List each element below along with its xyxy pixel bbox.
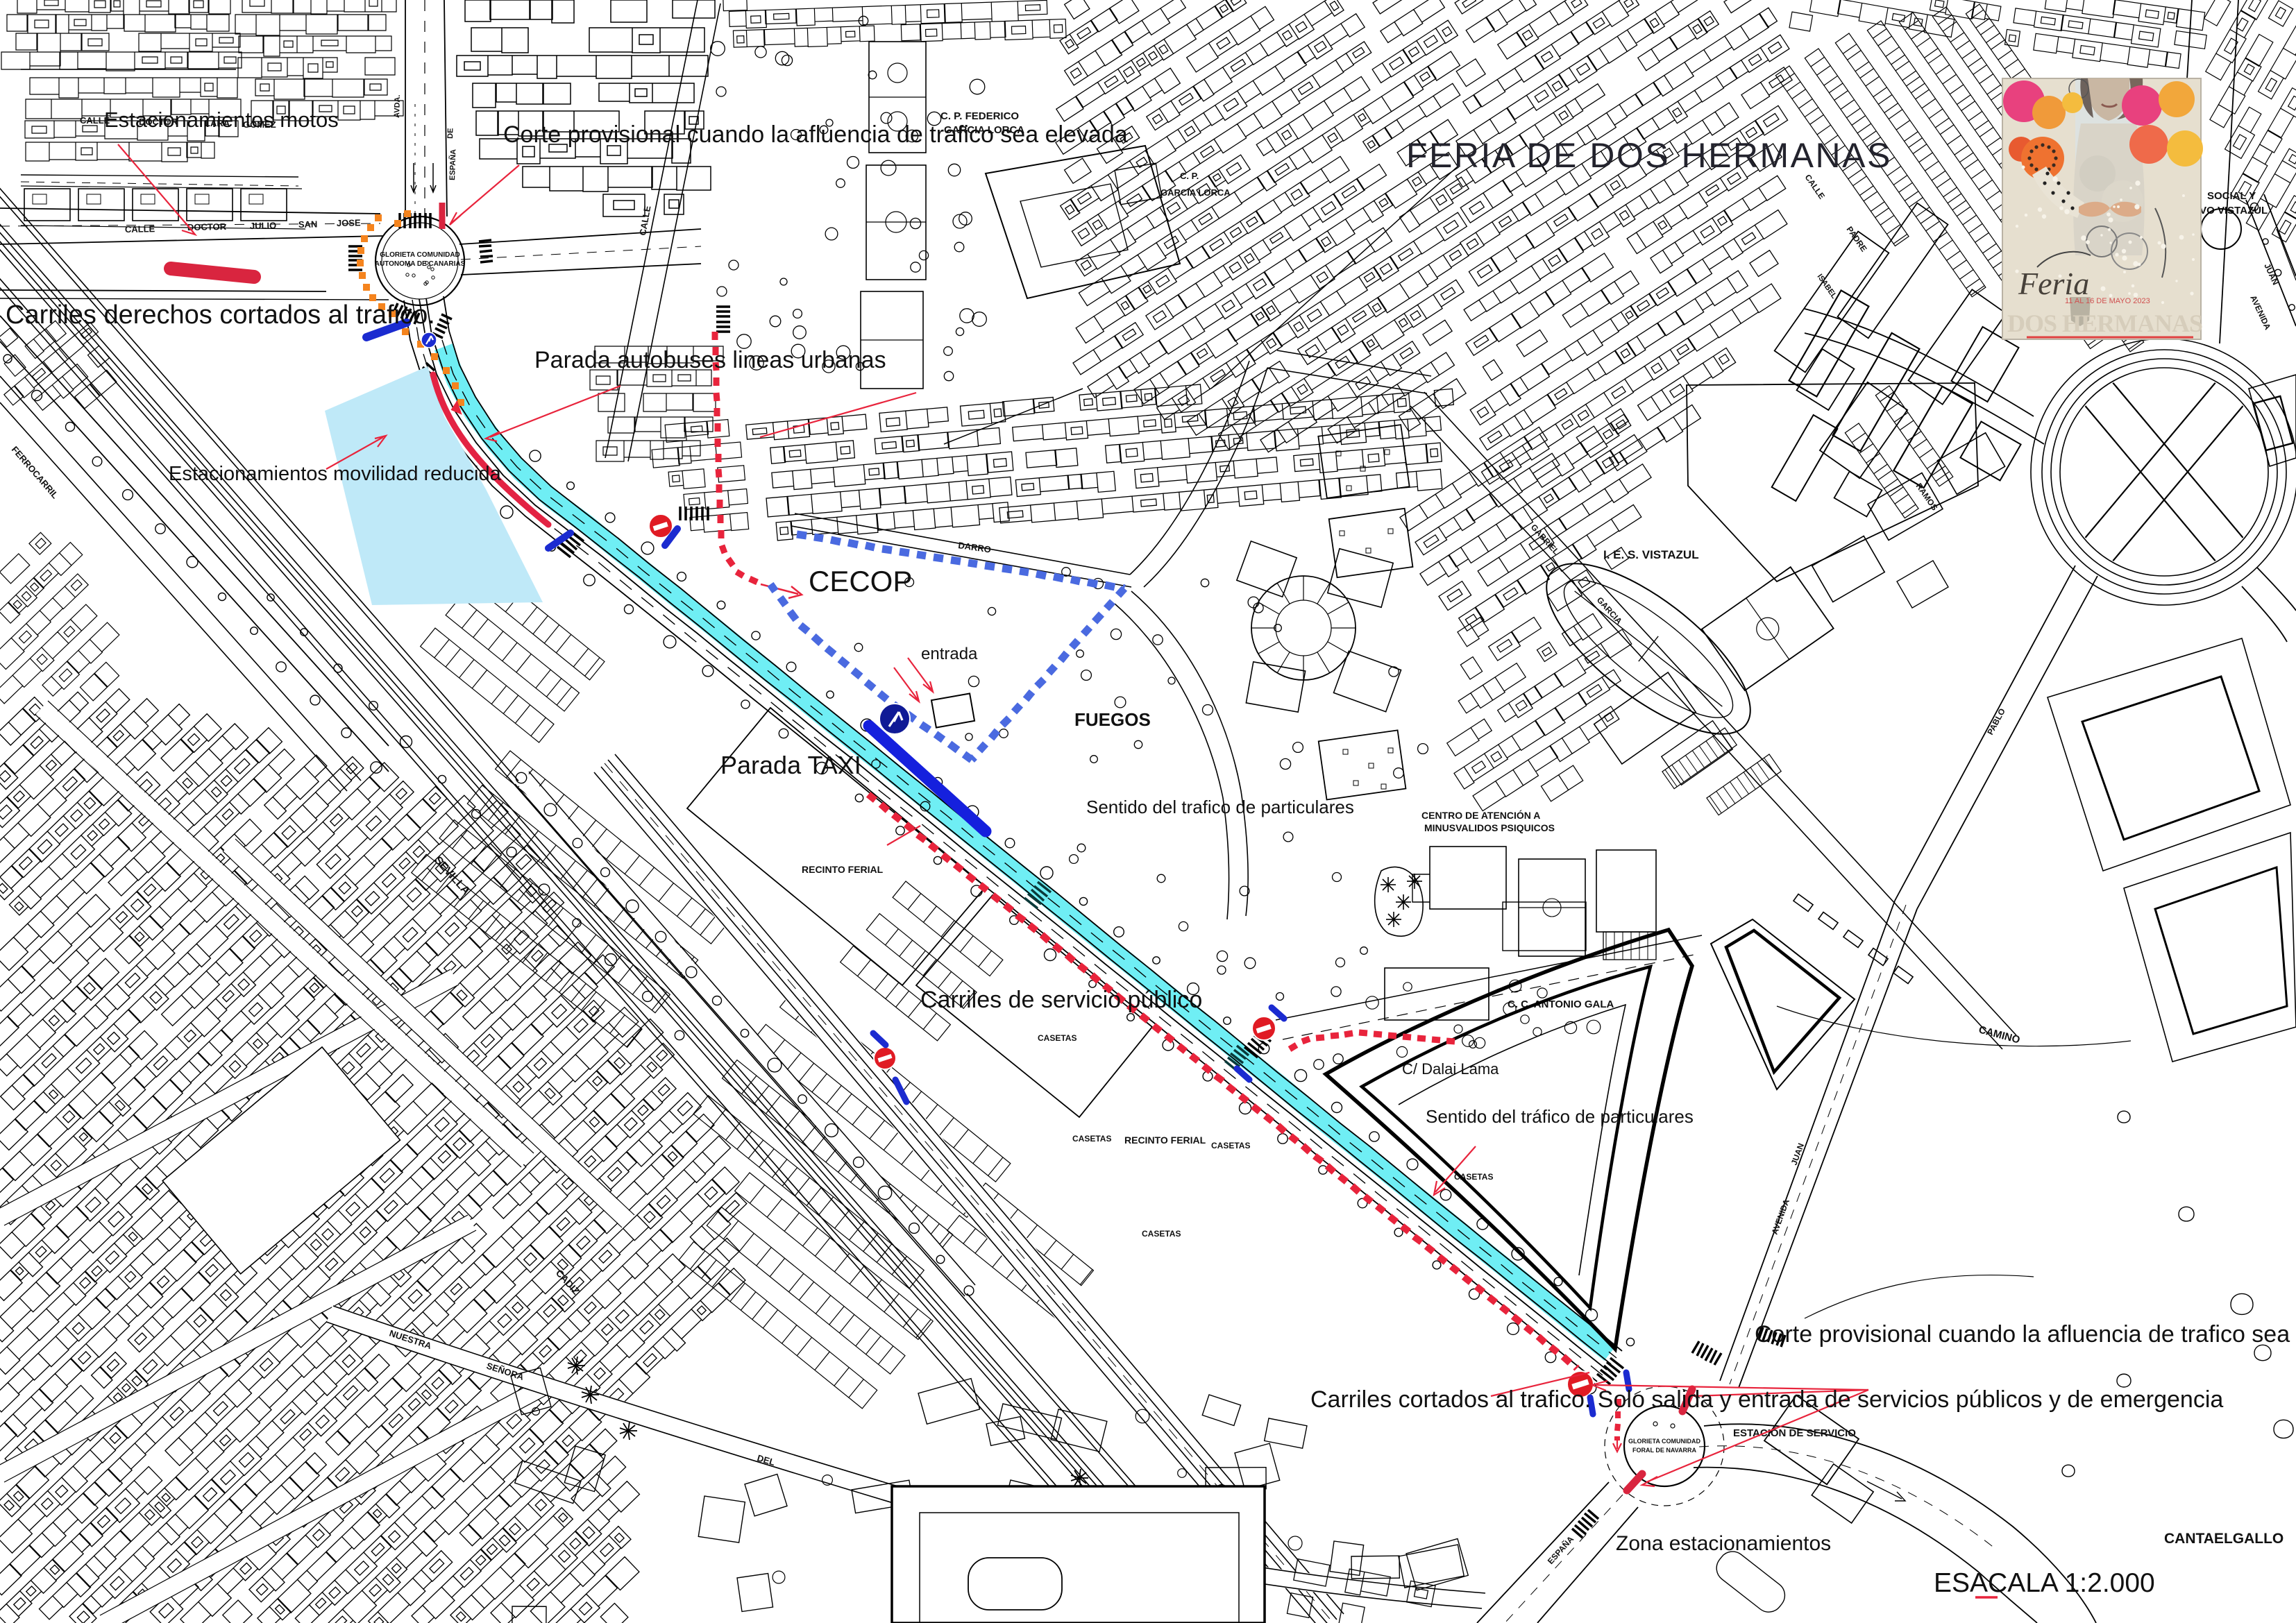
svg-text:Parada TAXI: Parada TAXI [720,751,861,779]
svg-text:RECINTO FERIAL: RECINTO FERIAL [1124,1135,1206,1146]
svg-text:DE: DE [446,128,455,139]
svg-text:I. E. S. VISTAZUL: I. E. S. VISTAZUL [1603,548,1699,561]
svg-text:FORAL DE NAVARRA: FORAL DE NAVARRA [1632,1447,1697,1454]
svg-text:Estacionamientos motos: Estacionamientos motos [104,108,339,132]
svg-text:Corte provisional cuando la af: Corte provisional cuando la afluencia de… [503,121,1128,148]
svg-text:Carriles de servicio público: Carriles de servicio público [920,987,1202,1013]
svg-text:CASETAS: CASETAS [1142,1229,1181,1239]
svg-text:AUTONOMA DE CANARIAS: AUTONOMA DE CANARIAS [375,260,466,268]
svg-text:DOCTOR: DOCTOR [187,221,227,232]
svg-text:GLORIETA COMUNIDAD: GLORIETA COMUNIDAD [1628,1438,1700,1445]
svg-text:CECOP: CECOP [809,565,912,597]
svg-text:Carriles derechos cortados al: Carriles derechos cortados al trafico. [6,300,435,330]
svg-text:Sentido del tráfico de particu: Sentido del tráfico de particulares [1426,1106,1694,1127]
svg-text:AVDA.: AVDA. [393,94,402,118]
svg-text:C. P. FEDERICO: C. P. FEDERICO [940,110,1019,122]
svg-text:11 AL 16 DE MAYO 2023: 11 AL 16 DE MAYO 2023 [2065,297,2150,305]
svg-text:MINUSVALIDOS PSIQUICOS: MINUSVALIDOS PSIQUICOS [1424,822,1555,833]
svg-text:JOSE: JOSE [337,217,361,228]
svg-text:Carriles cortados al trafico.: Carriles cortados al trafico. Solo salid… [1310,1386,2223,1413]
svg-text:Zona estacionamientos: Zona estacionamientos [1616,1532,1831,1555]
svg-text:entrada: entrada [921,645,978,663]
svg-text:CASETAS: CASETAS [1072,1134,1111,1144]
svg-text:RECINTO FERIAL: RECINTO FERIAL [802,864,884,875]
svg-text:SOCIAL Y: SOCIAL Y [2207,190,2256,202]
svg-text:JULIO: JULIO [250,220,277,231]
svg-text:C. P.: C. P. [1180,171,1199,181]
svg-text:GLORIETA COMUNIDAD: GLORIETA COMUNIDAD [380,251,460,259]
svg-text:ESTACIÓN DE SERVICIO: ESTACIÓN DE SERVICIO [1733,1427,1856,1439]
svg-text:Estacionamientos movilidad red: Estacionamientos movilidad reducida [169,463,502,485]
svg-text:CASETAS: CASETAS [1211,1141,1250,1150]
svg-text:C/ Dalai Lama: C/ Dalai Lama [1402,1060,1499,1078]
svg-text:Corte provisional cuando la af: Corte provisional cuando la afluencia de… [1755,1321,2296,1348]
svg-text:CANTAELGALLO: CANTAELGALLO [2164,1531,2284,1547]
svg-text:FERIA DE DOS HERMANAS: FERIA DE DOS HERMANAS [1406,136,1892,175]
svg-text:CASETAS: CASETAS [1038,1033,1077,1043]
svg-text:CALLE: CALLE [125,223,155,235]
svg-text:Feria: Feria [2018,266,2089,301]
svg-text:SAN: SAN [298,219,318,230]
svg-text:Sentido del trafico de particu: Sentido del trafico de particulares [1086,797,1354,817]
svg-text:CENTRO DE ATENCIÓN A: CENTRO DE ATENCIÓN A [1421,809,1540,821]
svg-text:ESACALA 1:2.000: ESACALA 1:2.000 [1934,1568,2155,1598]
svg-text:Parada autobuses lineas urbana: Parada autobuses lineas urbanas [534,347,886,373]
svg-text:ESPAÑA: ESPAÑA [448,149,458,181]
svg-text:DOS HERMANAS: DOS HERMANAS [2007,309,2202,337]
svg-text:GARCIA LORCA: GARCIA LORCA [1160,187,1231,198]
svg-text:FUEGOS: FUEGOS [1074,709,1151,730]
